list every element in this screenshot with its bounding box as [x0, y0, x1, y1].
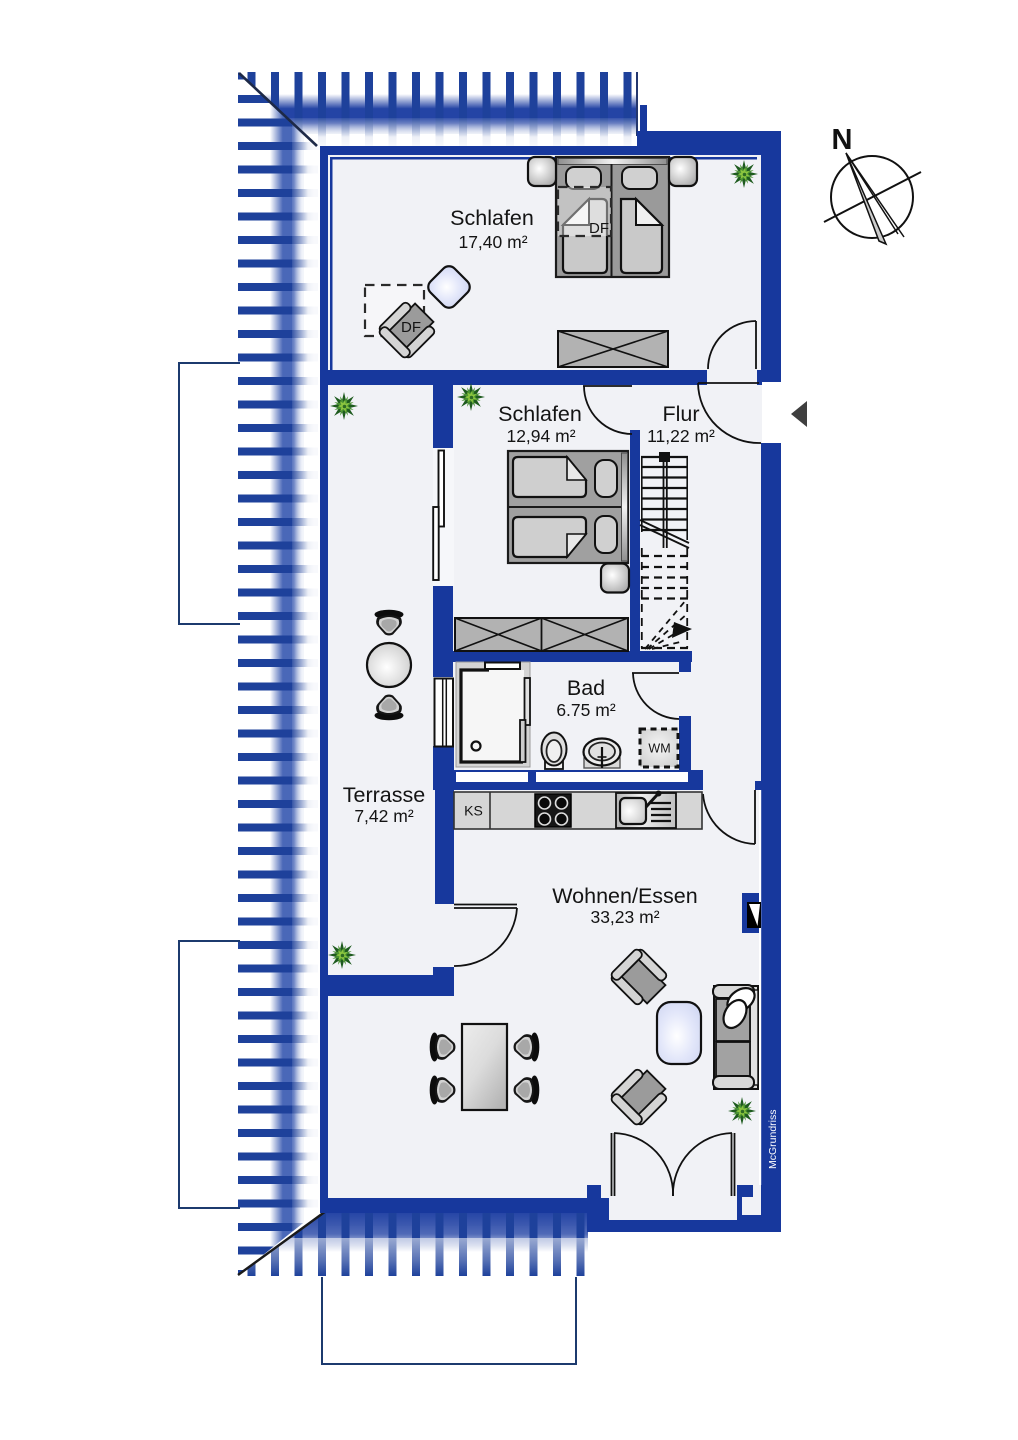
svg-text:7,42 m²: 7,42 m²	[354, 806, 413, 826]
svg-text:Schlafen: Schlafen	[498, 402, 582, 426]
svg-text:Flur: Flur	[662, 402, 699, 426]
svg-text:12,94 m²: 12,94 m²	[506, 426, 575, 446]
svg-text:Wohnen/Essen: Wohnen/Essen	[552, 884, 697, 908]
svg-text:Bad: Bad	[567, 676, 605, 700]
svg-text:Terrasse: Terrasse	[343, 783, 425, 807]
svg-text:McGrundriss: McGrundriss	[767, 1109, 779, 1169]
svg-text:N: N	[832, 124, 853, 156]
svg-text:17,40 m²: 17,40 m²	[458, 232, 527, 252]
svg-text:WM: WM	[648, 742, 670, 756]
svg-text:DF: DF	[589, 220, 609, 237]
svg-text:11,22 m²: 11,22 m²	[647, 426, 715, 446]
svg-text:DF: DF	[401, 319, 421, 336]
svg-text:33,23 m²: 33,23 m²	[590, 907, 659, 927]
svg-text:Schlafen: Schlafen	[450, 206, 534, 230]
svg-text:6.75 m²: 6.75 m²	[556, 700, 615, 720]
svg-text:KS: KS	[464, 803, 483, 819]
